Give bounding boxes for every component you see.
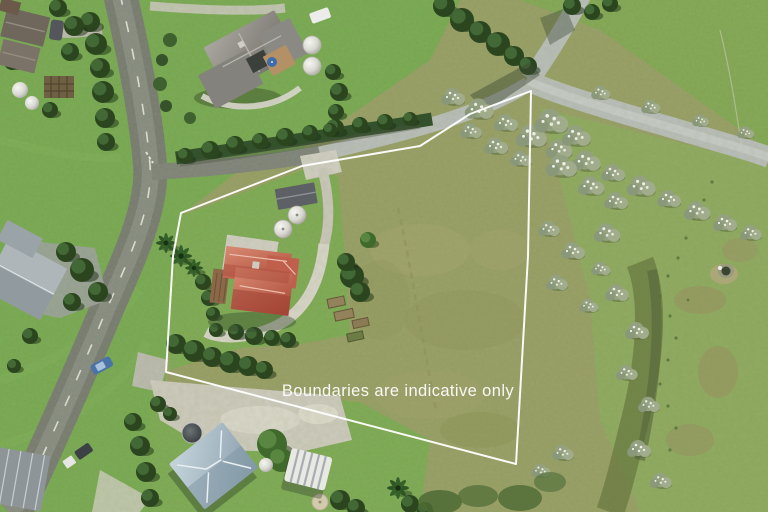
scrub-patch bbox=[534, 472, 566, 492]
pond-object bbox=[718, 266, 722, 270]
water-tank bbox=[303, 36, 321, 54]
disclaimer-text: Boundaries are indicative only bbox=[282, 382, 514, 400]
water-tank bbox=[12, 82, 28, 98]
pond-water bbox=[722, 267, 731, 276]
dark-water-tank bbox=[182, 423, 202, 443]
scrub-patch bbox=[498, 485, 542, 511]
water-tank bbox=[259, 458, 273, 472]
umbrella-top bbox=[271, 61, 273, 63]
parked-car bbox=[49, 19, 65, 41]
tank-lid bbox=[296, 214, 299, 217]
aerial-photo-canvas: Boundaries are indicative only bbox=[0, 0, 768, 512]
scrub-patch bbox=[458, 485, 498, 507]
water-tank bbox=[303, 57, 321, 75]
aerial-photo: Boundaries are indicative only bbox=[0, 0, 768, 512]
tank-lid bbox=[319, 501, 322, 504]
tank-lid bbox=[282, 228, 285, 231]
water-tank bbox=[25, 96, 39, 110]
